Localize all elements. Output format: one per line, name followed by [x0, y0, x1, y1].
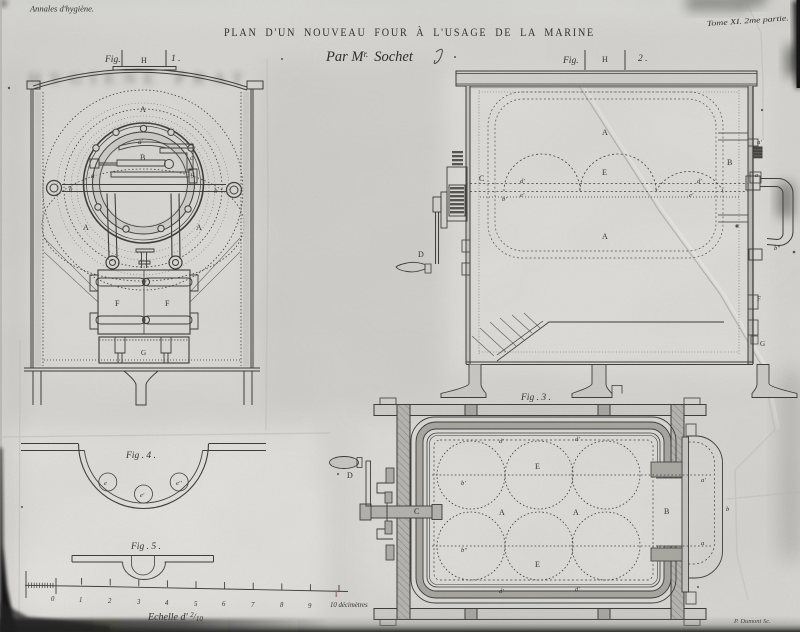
svg-text:a: a [91, 172, 95, 180]
svg-text:3: 3 [136, 599, 141, 606]
svg-text:A: A [196, 223, 202, 232]
svg-text:e': e' [520, 192, 525, 199]
svg-text:a: a [701, 540, 704, 547]
svg-text:d': d' [499, 588, 504, 595]
svg-text:D: D [418, 250, 424, 259]
svg-text:d': d' [575, 586, 580, 593]
svg-text:E: E [535, 462, 540, 471]
svg-text:A: A [573, 508, 579, 517]
svg-text:Fig . 5 .: Fig . 5 . [130, 542, 161, 552]
svg-text:1 .: 1 . [171, 54, 181, 64]
svg-text:5: 5 [194, 601, 198, 608]
svg-text:A: A [602, 128, 608, 137]
svg-text:8: 8 [280, 602, 284, 609]
svg-text:2 .: 2 . [638, 54, 648, 64]
svg-text:C: C [479, 174, 484, 183]
svg-text:Fig . 3 .: Fig . 3 . [520, 393, 551, 403]
svg-text:e'': e'' [176, 480, 182, 487]
svg-text:F: F [757, 295, 761, 303]
svg-text:Annales d'hygiène.: Annales d'hygiène. [29, 5, 94, 14]
svg-text:G: G [141, 349, 146, 357]
svg-text:b: b [214, 187, 218, 195]
svg-text:E: E [602, 168, 607, 177]
svg-text:1: 1 [79, 597, 82, 604]
svg-text:a': a' [701, 477, 706, 484]
svg-text:b'': b'' [461, 547, 468, 554]
svg-text:d': d' [697, 178, 702, 185]
svg-text:H: H [141, 56, 147, 65]
svg-text:b': b' [461, 480, 466, 487]
svg-text:Fig . 4 .: Fig . 4 . [125, 451, 156, 461]
svg-text:D: D [347, 471, 353, 480]
svg-text:A: A [602, 232, 608, 241]
svg-text:A: A [499, 508, 505, 517]
svg-text:A: A [83, 223, 89, 232]
svg-text:G: G [760, 340, 765, 348]
svg-text:e': e' [689, 192, 694, 199]
svg-text:0: 0 [51, 596, 55, 603]
svg-text:b': b' [502, 196, 507, 203]
svg-text:C: C [414, 507, 419, 516]
svg-text:d': d' [499, 438, 504, 445]
svg-text:7: 7 [251, 602, 255, 609]
svg-text:a: a [755, 172, 758, 179]
svg-text:a': a' [757, 139, 762, 146]
svg-text:9: 9 [308, 603, 312, 610]
svg-text:10 décimètres: 10 décimètres [330, 602, 368, 609]
svg-text:e': e' [140, 492, 145, 499]
svg-text:H: H [602, 55, 608, 64]
svg-text:B: B [664, 507, 669, 516]
svg-text:b'': b'' [774, 245, 781, 252]
svg-text:a': a' [138, 138, 144, 146]
svg-text:d': d' [575, 436, 580, 443]
svg-text:A: A [140, 105, 146, 114]
svg-text:b: b [69, 185, 73, 193]
svg-text:Fig.: Fig. [562, 56, 579, 66]
svg-text:Fig.: Fig. [104, 55, 121, 65]
svg-text:E: E [535, 560, 540, 569]
svg-text:e: e [104, 480, 107, 487]
svg-text:4: 4 [165, 600, 169, 607]
svg-text:B: B [140, 153, 145, 162]
svg-text:F: F [115, 299, 120, 308]
svg-text:d': d' [520, 178, 525, 185]
svg-text:6: 6 [222, 601, 226, 608]
svg-text:B: B [727, 158, 732, 167]
svg-text:g: g [191, 170, 195, 178]
svg-text:F: F [165, 299, 170, 308]
svg-text:2: 2 [108, 598, 112, 605]
svg-text:PLAN D'UN NOUVEAU FOUR À: PLAN D'UN NOUVEAU FOUR À L'USAGE DE LA M… [224, 25, 595, 39]
